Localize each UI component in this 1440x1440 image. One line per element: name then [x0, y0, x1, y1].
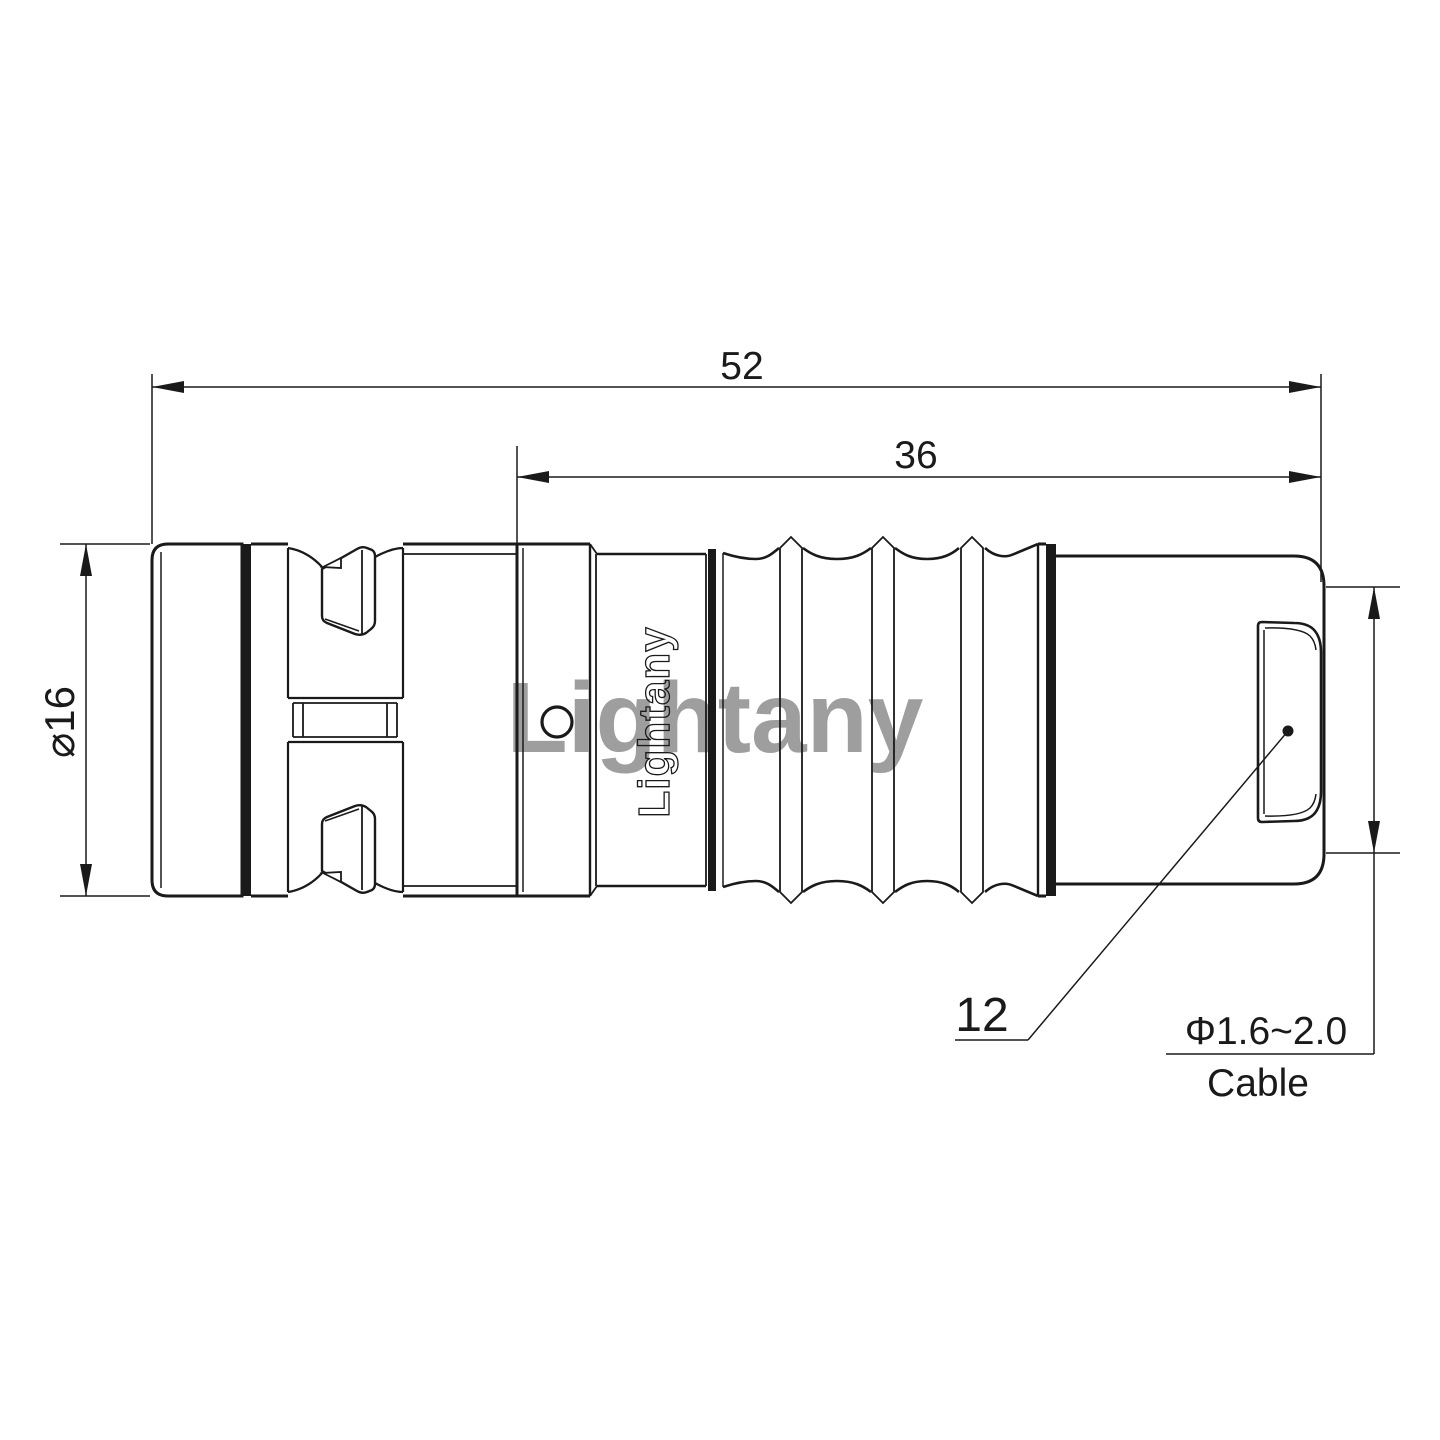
body-fill-knurl3	[960, 537, 984, 903]
cable-diameter-value: Φ1.6~2.0	[1185, 1010, 1347, 1053]
dim52-arrow-left	[152, 381, 184, 393]
dim36-arrow-right	[1289, 471, 1321, 483]
technical-drawing-page: Lightany	[0, 0, 1440, 1440]
label12-value: 12	[955, 989, 1008, 1042]
dim16-arrow-top	[80, 544, 92, 576]
dim-front-diameter: ⌀16	[36, 544, 150, 896]
ring-band-b	[708, 549, 716, 891]
dim12-arrow-bottom	[1368, 821, 1380, 853]
dim12-extension-lines	[1326, 587, 1400, 853]
cable-word: Cable	[1207, 1062, 1309, 1105]
dim16-arrow-bottom	[80, 864, 92, 896]
cable-boot-window	[1258, 622, 1321, 822]
dim36-value: 36	[894, 434, 937, 477]
connector-drawing: Lightany	[0, 0, 1440, 1440]
dim12-arrow-top	[1368, 587, 1380, 619]
boot-window-outline	[1258, 622, 1321, 822]
dim52-arrow-right	[1289, 381, 1321, 393]
ring-band-c	[1046, 544, 1056, 896]
brand-logo-text: Lightany	[630, 626, 679, 817]
dim16-value: ⌀16	[36, 686, 83, 758]
dim36-arrow-left	[517, 471, 549, 483]
ring-band-a	[242, 544, 251, 896]
dim52-value: 52	[720, 345, 763, 388]
dim-rear-diameter	[1326, 587, 1400, 1054]
cable-callout: Φ1.6~2.0 Cable	[1166, 1010, 1374, 1105]
dim-grip-length: 36	[517, 434, 1321, 544]
